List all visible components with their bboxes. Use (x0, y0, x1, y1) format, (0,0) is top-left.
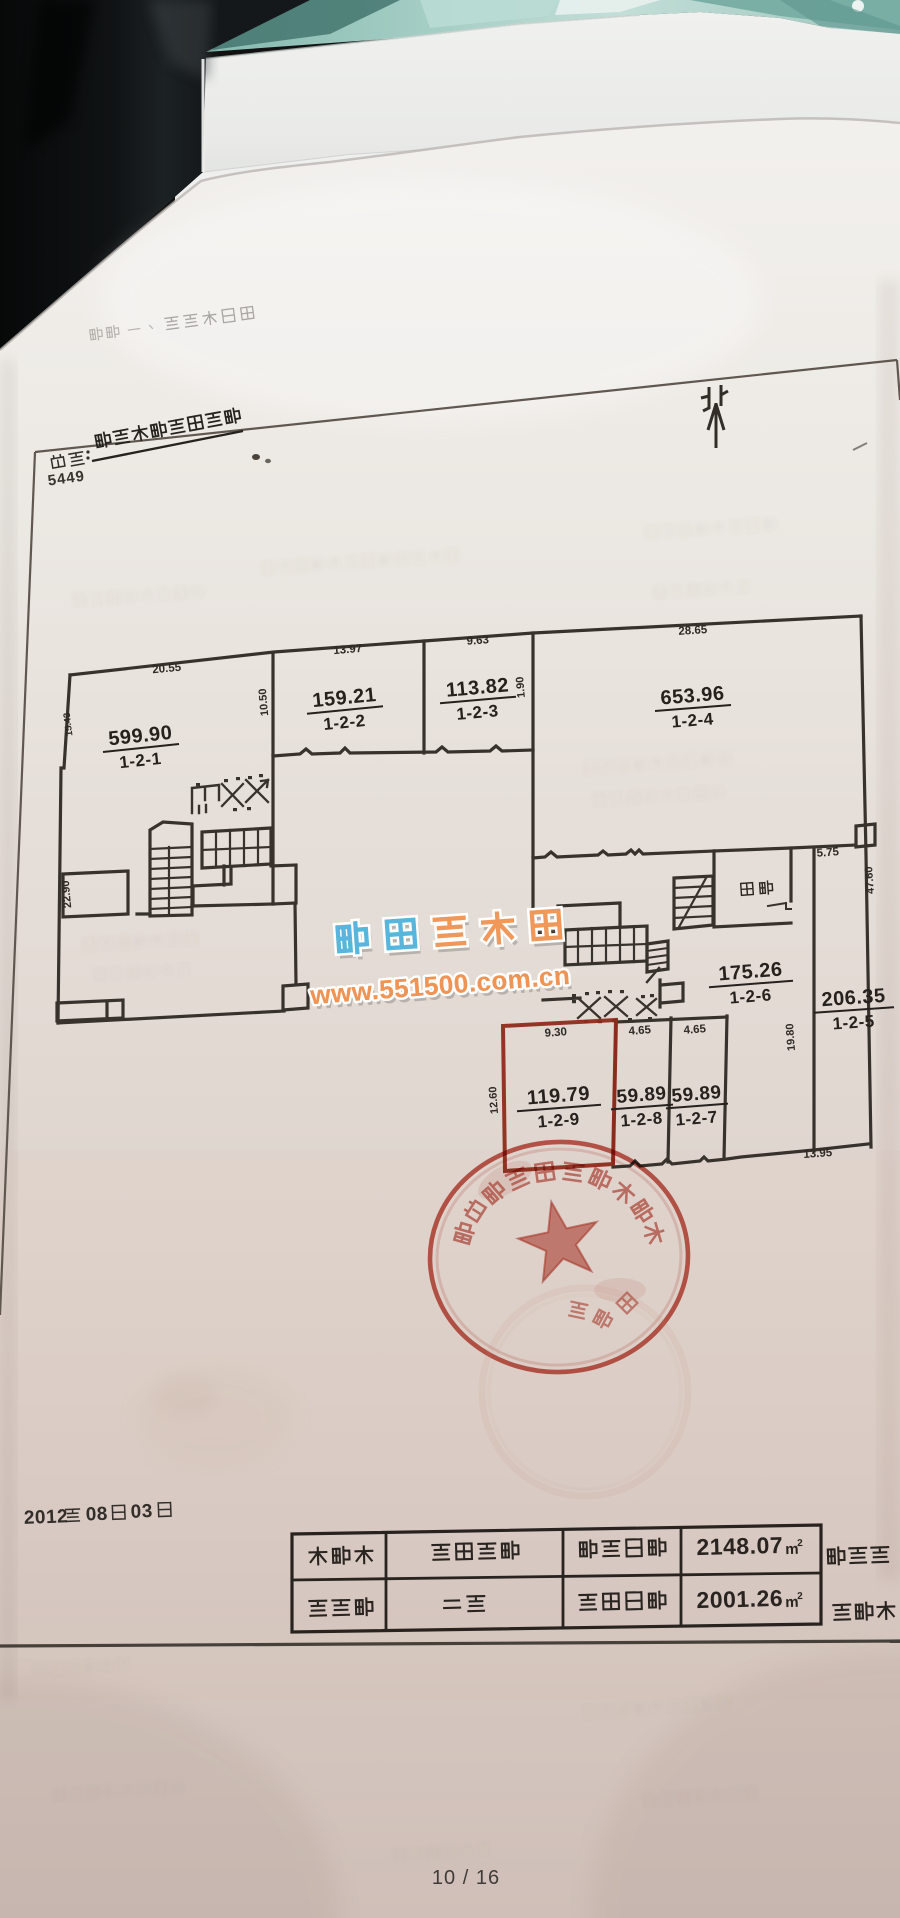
svg-text:1-2-8: 1-2-8 (620, 1108, 664, 1130)
svg-text:1-2-4: 1-2-4 (671, 709, 715, 731)
svg-text:206.35: 206.35 (821, 985, 887, 1011)
svg-text:1-2-5: 1-2-5 (832, 1012, 875, 1034)
svg-text:1-2-6: 1-2-6 (729, 985, 773, 1007)
svg-text:47.60: 47.60 (863, 866, 877, 894)
svg-text:03: 03 (130, 1501, 153, 1523)
svg-text:2: 2 (797, 1538, 803, 1549)
svg-text:1-2-9: 1-2-9 (537, 1109, 581, 1131)
svg-text:2012: 2012 (23, 1506, 68, 1529)
svg-text:28.65: 28.65 (678, 624, 708, 638)
svg-text:4.65: 4.65 (683, 1023, 707, 1037)
svg-text:2148.07: 2148.07 (696, 1532, 783, 1560)
svg-text:1-2-2: 1-2-2 (323, 711, 367, 734)
svg-text:19.80: 19.80 (784, 1023, 798, 1051)
svg-text:12.60: 12.60 (487, 1086, 501, 1114)
svg-text:59.89: 59.89 (616, 1083, 668, 1108)
svg-text:9.30: 9.30 (544, 1026, 567, 1040)
svg-text:59.89: 59.89 (671, 1082, 723, 1107)
svg-text:1-2-3: 1-2-3 (456, 701, 500, 724)
svg-text:13.97: 13.97 (333, 643, 363, 657)
svg-text:2: 2 (797, 1591, 803, 1602)
svg-text:2001.26: 2001.26 (696, 1585, 783, 1613)
svg-text:20.55: 20.55 (152, 662, 182, 677)
svg-text:9.63: 9.63 (466, 634, 489, 648)
svg-text:08: 08 (85, 1504, 108, 1526)
svg-text:22.90: 22.90 (60, 880, 74, 908)
svg-text:10 / 16: 10 / 16 (432, 1867, 500, 1889)
svg-text:5.75: 5.75 (816, 846, 840, 860)
svg-text:13.95: 13.95 (803, 1147, 833, 1161)
svg-text:10.50: 10.50 (257, 688, 271, 716)
svg-text:1-2-7: 1-2-7 (675, 1107, 719, 1129)
svg-text:4.65: 4.65 (628, 1024, 652, 1038)
svg-text:1.90: 1.90 (514, 676, 528, 698)
